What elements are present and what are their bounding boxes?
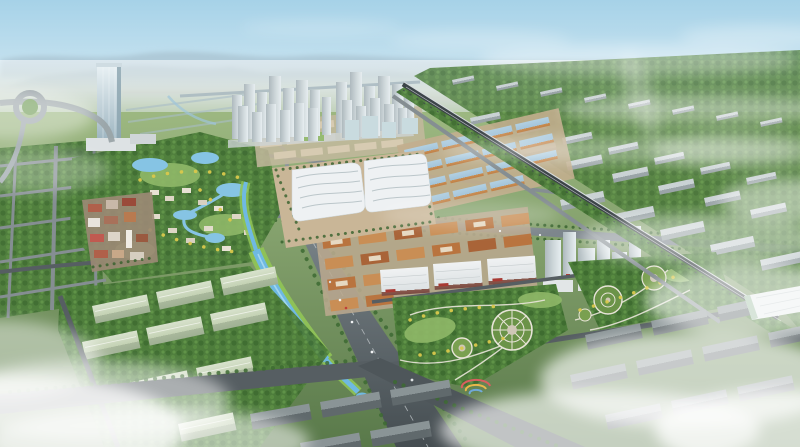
aerial-city-rendering xyxy=(0,0,800,447)
old-town xyxy=(82,192,158,272)
scene-canvas xyxy=(0,0,800,447)
mandala-garden xyxy=(492,310,532,350)
